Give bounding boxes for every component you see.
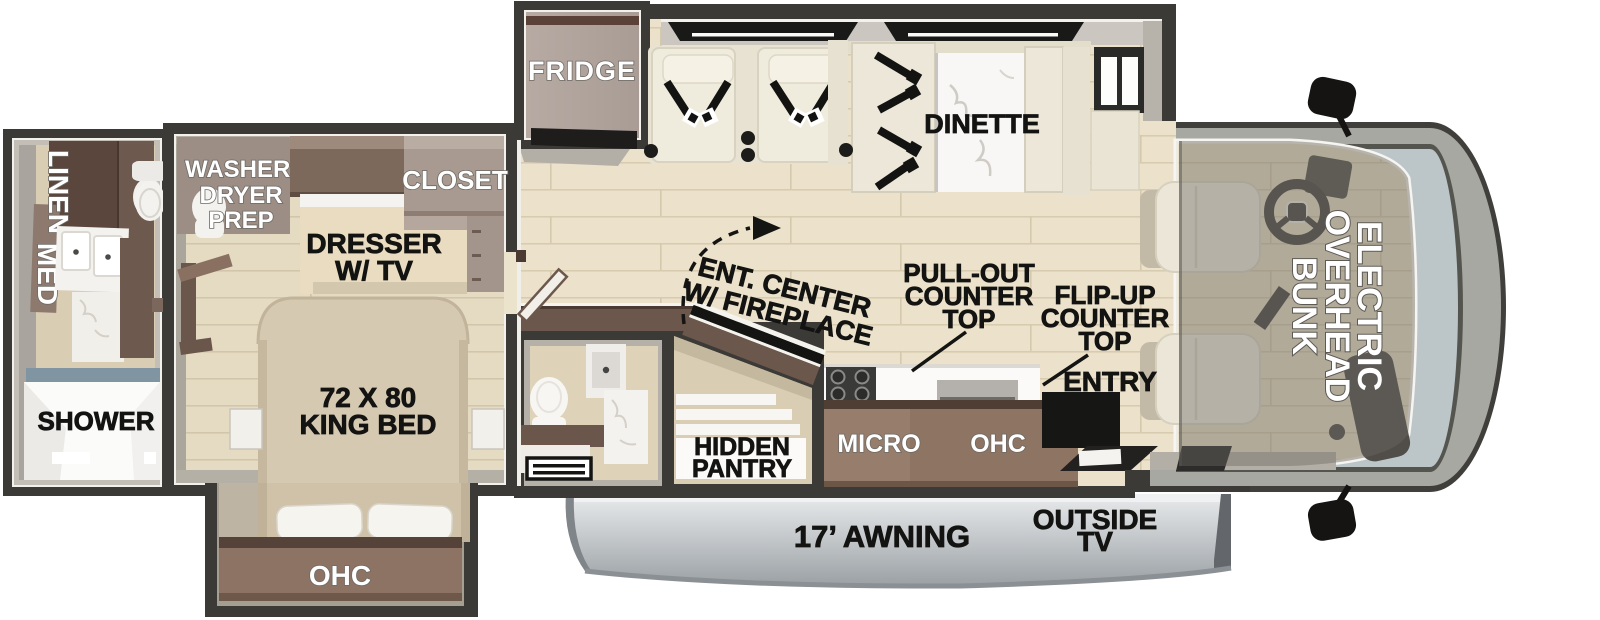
svg-text:TOP: TOP	[1079, 326, 1132, 356]
svg-text:DINETTE: DINETTE	[924, 109, 1040, 139]
svg-text:CLOSET: CLOSET	[402, 165, 508, 195]
svg-text:ENTRY: ENTRY	[1063, 366, 1157, 397]
svg-text:MICRO: MICRO	[837, 430, 920, 458]
svg-text:OHC: OHC	[970, 430, 1026, 458]
svg-text:TOP: TOP	[943, 304, 996, 334]
svg-text:TV: TV	[1077, 526, 1113, 557]
svg-text:WASHER/: WASHER/	[185, 156, 297, 183]
svg-text:LINEN: LINEN	[43, 150, 74, 234]
svg-text:PANTRY: PANTRY	[692, 455, 792, 483]
svg-text:SHOWER: SHOWER	[38, 406, 155, 436]
svg-text:FRIDGE: FRIDGE	[528, 56, 636, 86]
svg-text:KING BED: KING BED	[300, 409, 437, 440]
svg-text:17’ AWNING: 17’ AWNING	[794, 519, 970, 554]
svg-text:DRYER: DRYER	[199, 182, 282, 209]
svg-text:BUNK: BUNK	[1285, 257, 1323, 356]
svg-text:PREP: PREP	[208, 207, 273, 234]
svg-text:W/ TV: W/ TV	[335, 255, 413, 286]
svg-text:OHC: OHC	[309, 560, 371, 591]
